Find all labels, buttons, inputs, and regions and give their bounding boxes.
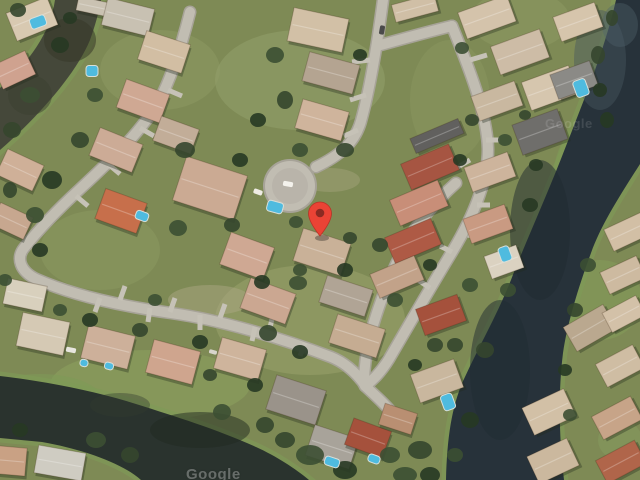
tree-canopy: [277, 91, 293, 109]
tree-canopy: [148, 294, 162, 306]
water-tint: [90, 393, 150, 417]
driveway: [252, 327, 255, 341]
tree-canopy: [71, 132, 89, 148]
tree-canopy: [296, 445, 324, 465]
tree-canopy: [500, 283, 516, 297]
tree-canopy: [462, 278, 478, 292]
tree-canopy: [250, 113, 266, 127]
tree-canopy: [175, 142, 195, 158]
tree-canopy: [593, 83, 607, 97]
location-pin-dot: [316, 209, 325, 218]
tree-canopy: [266, 47, 284, 63]
water-tint: [602, 3, 638, 47]
tree-canopy: [32, 243, 48, 257]
tree-canopy: [87, 88, 103, 102]
tree-canopy: [600, 112, 614, 128]
tree-canopy: [254, 275, 270, 289]
tree-canopy: [476, 342, 494, 358]
tree-canopy: [82, 313, 98, 327]
pin-shadow: [315, 235, 329, 241]
tree-canopy: [372, 238, 388, 252]
water-tint: [150, 412, 250, 448]
swimming-pool: [79, 359, 88, 368]
tree-canopy: [292, 143, 308, 157]
tree-canopy: [519, 110, 531, 120]
tree-canopy: [522, 198, 538, 212]
tree-canopy: [213, 404, 231, 420]
tree-canopy: [169, 220, 187, 236]
tree-canopy: [606, 10, 618, 26]
tree-canopy: [224, 218, 240, 232]
tree-canopy: [259, 325, 277, 341]
tree-canopy: [3, 182, 17, 198]
tree-canopy: [247, 378, 263, 392]
tree-canopy: [387, 293, 403, 307]
tree-canopy: [353, 49, 367, 61]
tree-canopy: [498, 134, 512, 146]
tree-canopy: [337, 263, 353, 277]
satellite-imagery-canvas: [0, 0, 640, 480]
tree-canopy: [453, 154, 467, 166]
tree-canopy: [591, 46, 605, 64]
tree-canopy: [465, 114, 479, 126]
tree-canopy: [63, 12, 77, 24]
tree-canopy: [51, 37, 69, 53]
tree-canopy: [408, 359, 422, 371]
tree-canopy: [256, 417, 274, 433]
tree-canopy: [529, 159, 543, 171]
tree-canopy: [10, 3, 26, 17]
tree-canopy: [343, 232, 357, 244]
tree-canopy: [567, 303, 583, 317]
tree-canopy: [408, 441, 432, 459]
tree-canopy: [86, 432, 106, 448]
tree-canopy: [580, 258, 596, 272]
tree-canopy: [461, 412, 479, 428]
tree-canopy: [132, 323, 148, 337]
tree-canopy: [380, 447, 400, 463]
tree-canopy: [455, 42, 469, 54]
tree-canopy: [3, 122, 21, 138]
swimming-pool: [86, 66, 98, 77]
water-tint: [470, 300, 530, 440]
tree-canopy: [447, 448, 463, 462]
tree-canopy: [289, 276, 307, 290]
tree-canopy: [275, 432, 295, 448]
tree-canopy: [232, 153, 248, 167]
tree-canopy: [203, 369, 217, 381]
tree-canopy: [423, 259, 437, 271]
tree-canopy: [26, 207, 44, 223]
water-tint: [510, 160, 570, 300]
tree-canopy: [289, 216, 303, 228]
tree-canopy: [427, 338, 443, 352]
tree-canopy: [20, 87, 40, 103]
tree-canopy: [292, 345, 308, 359]
tree-canopy: [563, 409, 577, 421]
tree-canopy: [121, 447, 139, 463]
tree-canopy: [293, 264, 307, 276]
driveway: [148, 308, 150, 322]
tree-canopy: [336, 143, 354, 157]
tree-canopy: [447, 338, 463, 352]
tree-canopy: [558, 364, 572, 376]
satellite-map[interactable]: Google Google: [0, 0, 640, 480]
tree-canopy: [192, 335, 208, 349]
tree-canopy: [53, 304, 67, 316]
tree-canopy: [42, 171, 62, 189]
tree-canopy: [12, 423, 28, 437]
